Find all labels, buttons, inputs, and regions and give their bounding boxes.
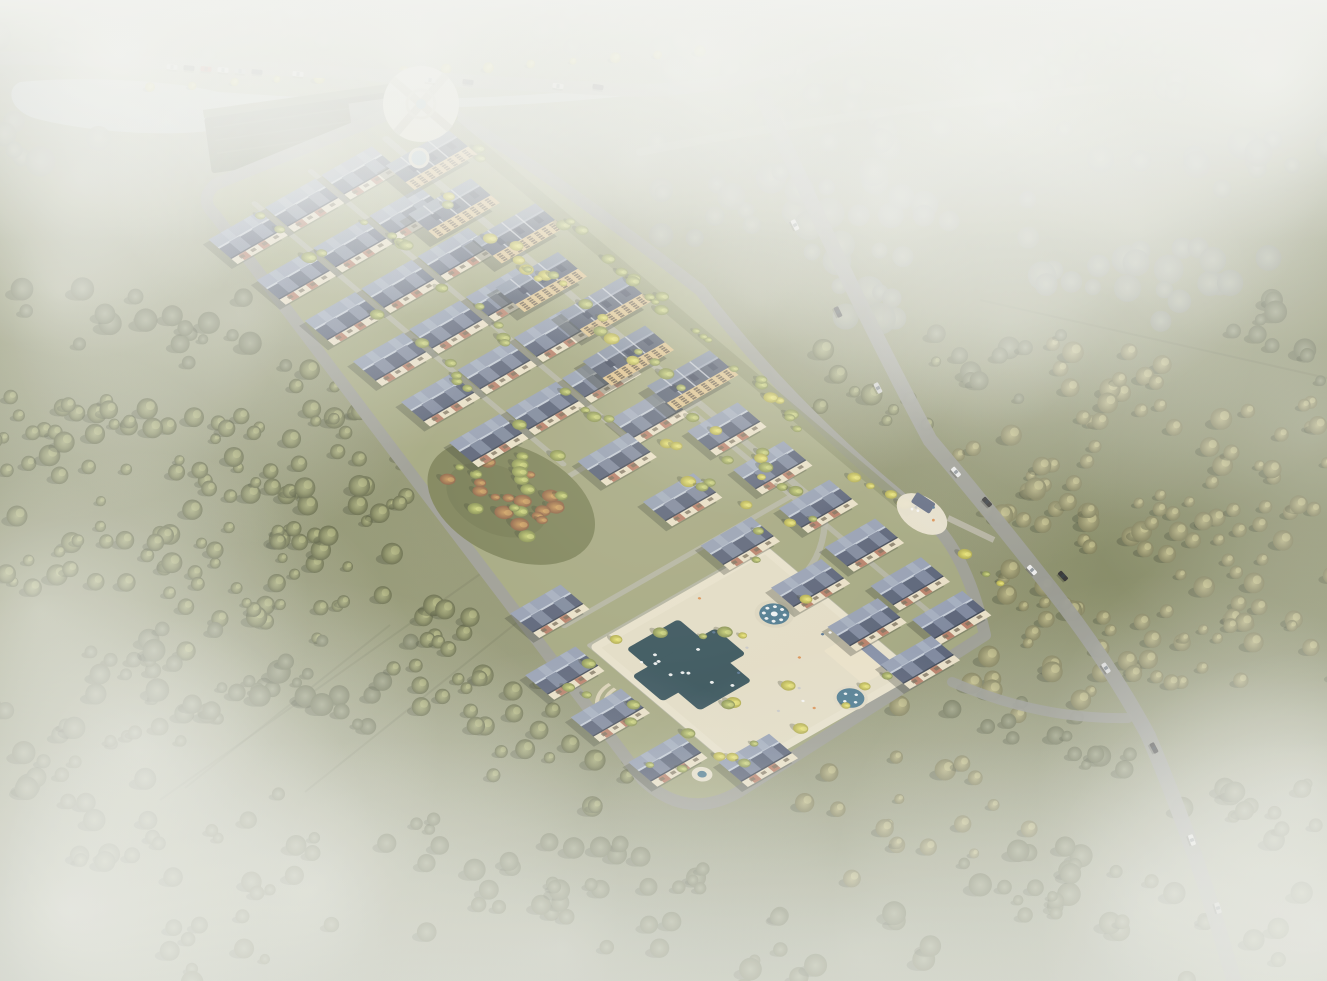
fog-layer bbox=[0, 0, 1327, 981]
aerial-rendering: Hazy bird's-eye rendering of a gated res… bbox=[0, 0, 1327, 981]
scene-canvas bbox=[0, 0, 1327, 981]
